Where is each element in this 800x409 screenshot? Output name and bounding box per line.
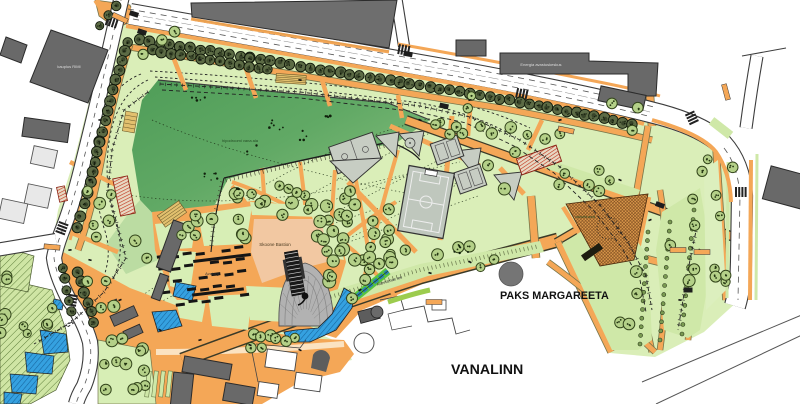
svg-text:valiuritused: valiuritused <box>575 214 595 219</box>
svg-text:Avaturg: Avaturg <box>205 271 219 276</box>
svg-text:hipodroomi vana ala: hipodroomi vana ala <box>222 138 259 143</box>
svg-text:VANALINN: VANALINN <box>451 362 523 378</box>
svg-text:kauplus RIMI: kauplus RIMI <box>57 64 80 69</box>
svg-text:Skoone Bastion: Skoone Bastion <box>259 242 291 247</box>
svg-text:PAKS MARGAREETA: PAKS MARGAREETA <box>500 290 609 302</box>
svg-text:Energia avastuskeskus: Energia avastuskeskus <box>520 62 561 67</box>
